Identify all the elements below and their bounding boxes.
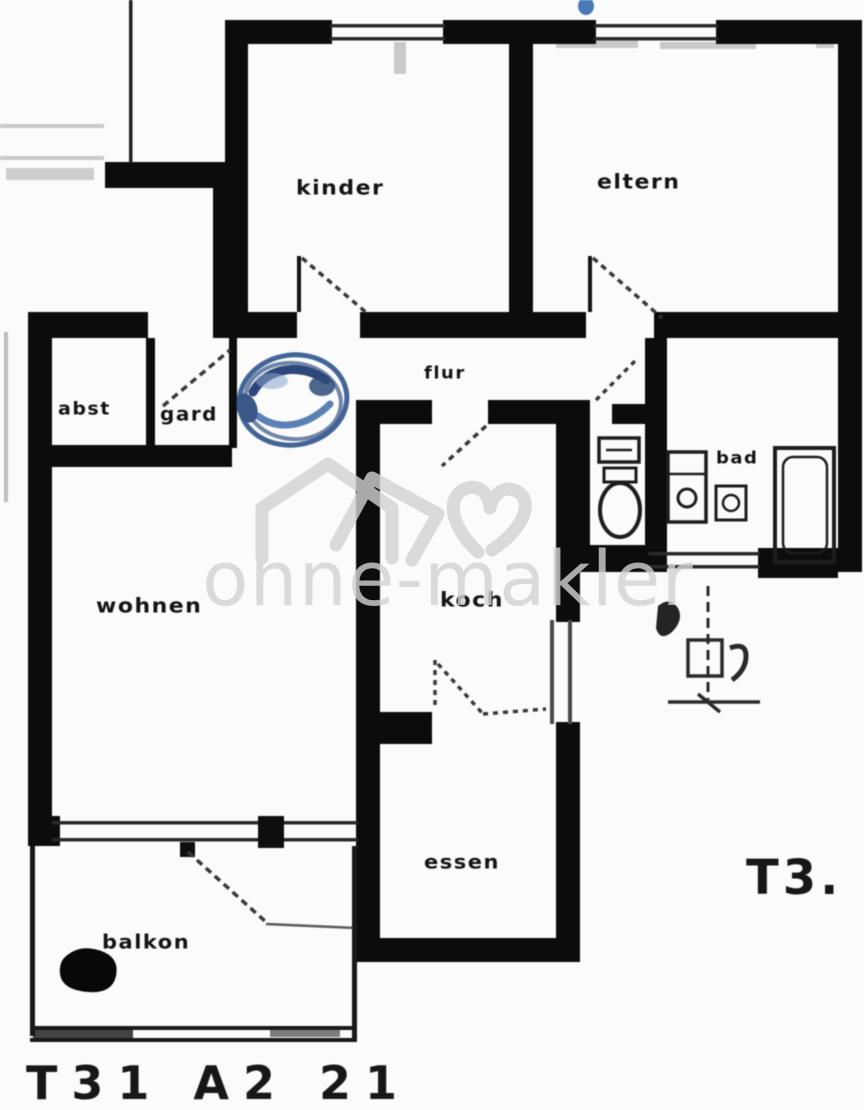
room-label-kinder: kinder: [296, 177, 384, 200]
balcony-outline: [30, 846, 357, 1042]
duct-marks: [656, 586, 760, 712]
toilet-icon: [599, 438, 640, 537]
shower-icon: [668, 452, 706, 522]
room-label-flur: flur: [424, 364, 466, 383]
door-swings: [163, 256, 662, 928]
plan-code-right: T3.: [746, 850, 842, 906]
sink-icon: [716, 486, 746, 520]
room-label-eltern: eltern: [597, 171, 680, 194]
room-label-bad: bad: [716, 449, 758, 468]
landing-line: [129, 0, 133, 163]
room-label-gard: gard: [160, 403, 218, 425]
bathtub-icon: [775, 448, 834, 562]
bleed-through-marks: [0, 40, 834, 502]
floor-plan-drawing: [0, 0, 864, 1080]
ink-blot: [60, 948, 117, 992]
blue-ink-dot: [578, 0, 594, 15]
walls: [28, 20, 862, 962]
room-label-wohnen: wohnen: [96, 595, 202, 618]
room-label-balkon: balkon: [102, 931, 190, 953]
floor-plan-page: kinder eltern flur abst gard wohnen koch…: [0, 0, 864, 1080]
plan-code-bottom: T31 A2 21: [26, 1056, 411, 1110]
room-label-koch: koch: [440, 589, 504, 612]
scanned-drawing-layer: kinder eltern flur abst gard wohnen koch…: [0, 0, 864, 1080]
room-label-essen: essen: [424, 851, 500, 873]
room-label-abst: abst: [58, 399, 111, 419]
ink-stamp: [232, 348, 352, 452]
